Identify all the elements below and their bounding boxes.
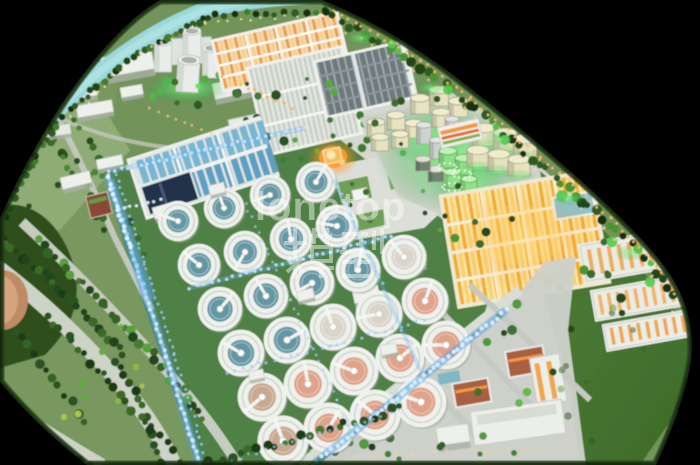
svg-text:lonetop: lonetop (255, 185, 406, 229)
